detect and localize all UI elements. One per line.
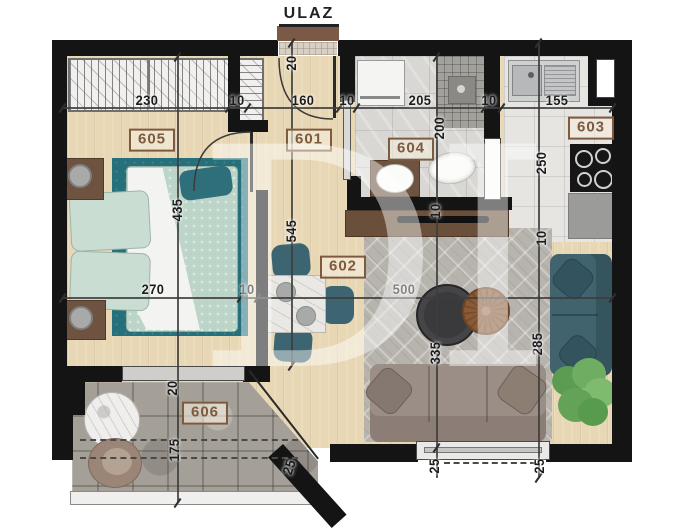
- wall-bottom-mid: [330, 444, 418, 462]
- dim-line-v4: [538, 42, 540, 478]
- dining-plate-1: [276, 282, 296, 302]
- coffee-table-wood: [462, 287, 510, 335]
- wall-bedroom-hall-upper: [228, 56, 240, 130]
- floor-plan: ULAZ 60560160460360260623010160102051015…: [0, 0, 684, 532]
- bathroom-sliding-door: [343, 100, 351, 180]
- wall-left-lower: [52, 415, 73, 460]
- dim-line-mid: [62, 297, 612, 299]
- dim-line-top: [62, 107, 612, 109]
- lamp-top: [68, 164, 92, 188]
- bathroom-door-leaf: [484, 138, 501, 200]
- washing-machine-door: [360, 96, 400, 99]
- dim-line-v2: [291, 42, 293, 366]
- kitchen-faucet: [528, 72, 534, 78]
- wall-bathroom-left-upper: [340, 56, 355, 102]
- wall-left-step: [52, 382, 85, 415]
- kitchen-drainboard: [544, 65, 576, 96]
- terrace-sliding-door: [122, 366, 245, 381]
- bedroom-door-leaf: [250, 132, 253, 192]
- window-dashed-line: [444, 462, 536, 464]
- plant-blob-5: [578, 398, 608, 426]
- terrace-railing: [70, 491, 318, 505]
- wall-bathroom-kitchen: [484, 56, 500, 138]
- shower-drain: [457, 85, 465, 93]
- wall-bottom-right: [546, 444, 632, 462]
- burner-3: [577, 172, 592, 187]
- burner-1: [575, 150, 593, 168]
- tv-soundbar: [397, 216, 489, 223]
- terrace-dashed-line-1: [80, 439, 298, 441]
- wall-top-left: [52, 40, 278, 56]
- dim-line-v3: [436, 56, 438, 478]
- sofa-gray-seam-1: [428, 366, 430, 422]
- terrace-dashed-line-2: [80, 457, 298, 459]
- wall-bedroom-bottom-left: [52, 366, 122, 382]
- sofa-teal-seam: [552, 314, 598, 316]
- wardrobe-divider: [148, 58, 150, 108]
- entrance-door-marker: [277, 26, 339, 41]
- wall-bedroom-hall-jog: [228, 120, 268, 132]
- dining-table: [263, 275, 326, 333]
- kitchen-window: [596, 59, 615, 98]
- wall-bedroom-hall-lower: [256, 190, 268, 366]
- terrace-chair-seat: [102, 448, 132, 475]
- burner-2: [595, 148, 611, 164]
- dining-chair-right: [322, 286, 354, 324]
- washing-machine: [357, 60, 405, 106]
- dim-line-v1: [177, 56, 179, 503]
- kitchen-counter-low: [568, 193, 616, 239]
- tv-console: [345, 210, 509, 237]
- dining-plate-2: [296, 306, 316, 326]
- lamp-bottom: [69, 306, 93, 330]
- bathroom-sink: [376, 164, 414, 193]
- wall-left: [52, 40, 67, 382]
- dimension-label: 25: [427, 458, 441, 473]
- entrance-doormat: [279, 42, 337, 55]
- entrance-door-leaf: [333, 56, 336, 118]
- wardrobe-top: [68, 58, 234, 112]
- entrance-label: ULAZ: [279, 4, 339, 27]
- wall-top-right: [338, 40, 612, 56]
- sofa-gray-seam-2: [486, 366, 488, 422]
- burner-4: [594, 170, 613, 189]
- living-room-window-sash: [424, 447, 542, 453]
